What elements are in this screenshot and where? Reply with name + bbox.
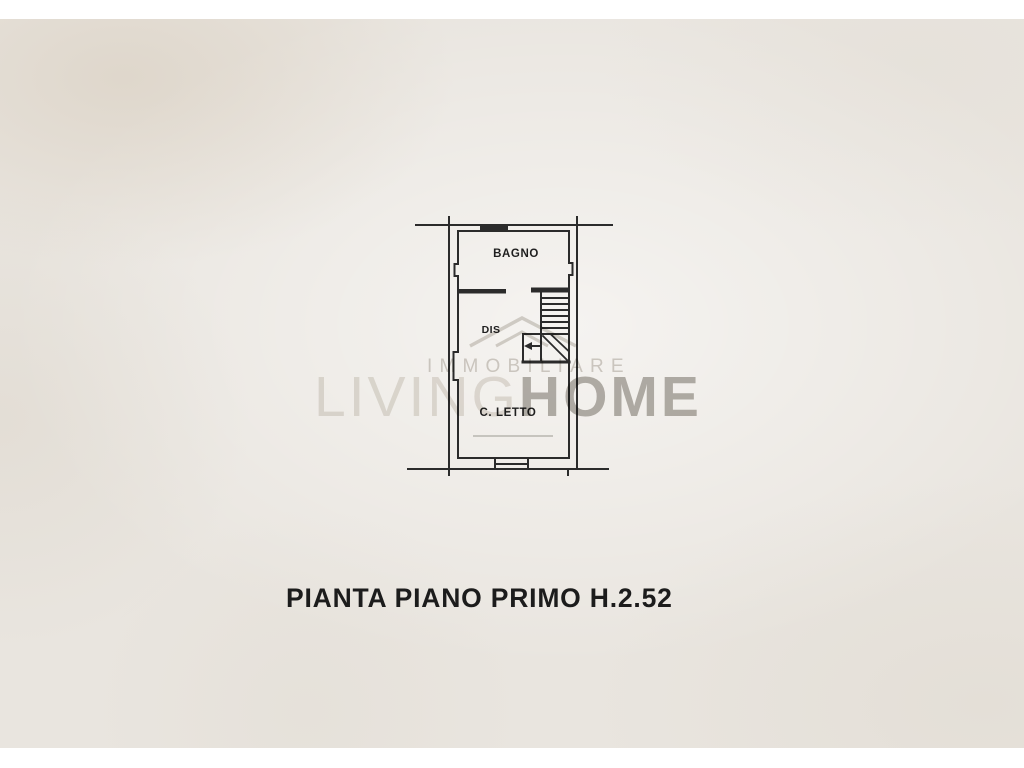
top-window	[480, 226, 508, 232]
stair-break-line	[543, 336, 567, 360]
stair-break-line	[551, 335, 569, 352]
left-inner-wall	[454, 231, 459, 458]
room-label-dis: DIS	[482, 324, 501, 336]
plan-caption: PIANTA PIANO PRIMO H.2.52	[286, 583, 673, 614]
partition-right-segment	[531, 288, 569, 293]
bottom-window	[495, 458, 528, 469]
partition-left-segment	[458, 289, 506, 294]
stair-arrow-icon	[524, 342, 532, 350]
staircase	[523, 292, 569, 362]
room-label-cletto: C. LETTO	[480, 407, 537, 419]
bagno-partition-wall	[458, 288, 569, 294]
room-label-bagno: BAGNO	[493, 248, 539, 260]
floor-plan-drawing: BAGNO DIS C. LETTO	[405, 212, 619, 480]
right-inner-wall	[569, 231, 573, 458]
